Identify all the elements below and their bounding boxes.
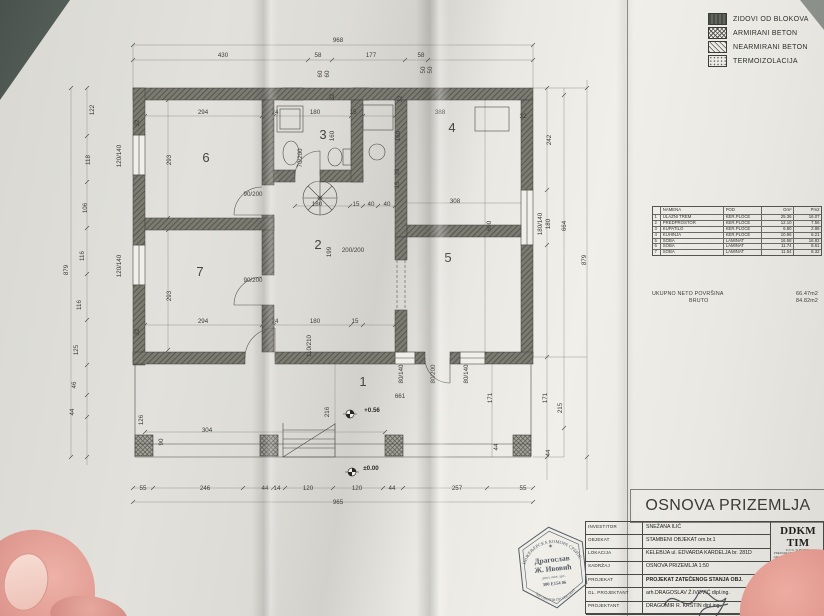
dim-label: 24	[272, 109, 279, 116]
dim-label: 50	[427, 66, 434, 73]
dim-label: 120	[352, 485, 363, 492]
dim-label: 293	[166, 290, 173, 301]
legend: ZIDOVI OD BLOKOVAARMIRANI BETONNEARMIRAN…	[708, 12, 809, 68]
table-cell: SOBA	[660, 239, 723, 244]
dim-label: 257	[452, 485, 463, 492]
svg-text:ОДГОВОРНИ ПРОЈЕКТАНТ: ОДГОВОРНИ ПРОЈЕКТАНТ	[534, 587, 577, 604]
svg-text:✶: ✶	[548, 543, 554, 550]
walls	[133, 88, 533, 365]
dim-label: 388	[435, 109, 446, 116]
dim-label: 180	[545, 218, 552, 229]
photo-of-floor-plan: 9684305817758606050508791221181061161161…	[0, 0, 824, 616]
diag-hatch-swatch	[708, 41, 727, 53]
table-cell: 8.32	[793, 250, 821, 255]
dim-label: 120/140	[116, 144, 123, 167]
table-cell: 4	[653, 233, 660, 238]
firm-box: DDKM TIM D.O.O. SUBOTICA PREDUZEĆE ZA PR…	[770, 522, 824, 575]
table-row: 1ULAZNI TREMKER.PLOČE25.3616.07	[653, 214, 821, 220]
signature	[656, 580, 756, 616]
stamp: ИНЖЕЊЕРСКА КОМОРА СРБИЈЕ ✶ Драгослав Ж. …	[509, 520, 598, 616]
dim-label: 120/140	[116, 254, 123, 277]
dim-label: 90/200	[244, 191, 263, 198]
table-cell: 8.61	[793, 244, 821, 249]
table-cell: KUPATILO	[660, 227, 723, 232]
dim-label: 14	[274, 485, 281, 492]
dim-label: 116	[76, 300, 83, 310]
title-block-label: OBJEKAT	[586, 535, 643, 547]
stamp-license: 300 E154 06	[542, 580, 567, 588]
dim-label: 177	[366, 52, 377, 59]
cross-hatch-swatch	[708, 27, 727, 39]
bruto-label: BRUTO	[652, 298, 708, 305]
drawing-title: OSNOVA PRIZEMLJA	[630, 489, 824, 523]
dim-label: 216	[324, 406, 331, 417]
dim-label: 965	[333, 499, 344, 506]
dim-label: 308	[450, 198, 461, 205]
table-cell: KER.PLOČE	[723, 221, 761, 226]
dim-label: 44	[262, 485, 269, 492]
thin-lines	[135, 105, 531, 457]
table-cell: 11.74	[761, 244, 793, 249]
dim-label: 40	[368, 201, 375, 208]
room-number: 7	[196, 264, 203, 279]
room-number: 4	[448, 120, 455, 135]
dim-label: 120	[303, 485, 314, 492]
floor-plan: 9684305817758606050508791221181061161161…	[55, 20, 600, 520]
legend-label: TERMOIZOLACIJA	[733, 58, 798, 65]
table-cell: PREDPROSTOR	[660, 221, 723, 226]
dots-hatch-swatch	[708, 55, 727, 67]
dim-label: 180	[312, 201, 323, 208]
dim-label: 44	[389, 485, 396, 492]
dim-label: 126	[138, 414, 145, 425]
table-cell: KER.PLOČE	[723, 233, 761, 238]
dim-label: 180/140	[537, 212, 544, 235]
room-table: NAMENAPODOm²Pm21ULAZNI TREMKER.PLOČE25.3…	[652, 206, 822, 256]
dim-label: 430	[218, 52, 229, 59]
dim-label: 294	[198, 109, 209, 116]
dim-label: 32	[397, 95, 404, 102]
dim-label: 661	[395, 393, 406, 400]
legend-item: ZIDOVI OD BLOKOVA	[708, 12, 809, 26]
title-block-row: OBJEKATSTAMBENI OBJEKAT om.br.1	[586, 535, 770, 548]
table-row: 2PREDPROSTORKER.PLOČE12.107.56	[653, 220, 821, 226]
dim-label: ±0.00	[363, 465, 379, 472]
dim-label: 171	[487, 392, 494, 403]
dim-label: 80/200	[430, 364, 437, 383]
dim-label: 32	[134, 119, 141, 126]
dim-label: 664	[561, 220, 568, 231]
table-cell: 16.82	[793, 239, 821, 244]
dim-label: 58	[315, 52, 322, 59]
table-cell: SOBA	[660, 244, 723, 249]
title-block-label: SADRŽAJ	[586, 562, 643, 574]
table-cell: 12.10	[761, 221, 793, 226]
title-block-value: KELEBIJA ul. EDVARDA KARDELJA br. 281D	[643, 549, 770, 561]
dim-label: 58	[418, 52, 425, 59]
title-block-row: INVESTITORSNEŽANA ILIĆ	[586, 522, 770, 535]
table-cell: 25.36	[761, 215, 793, 220]
legend-label: ZIDOVI OD BLOKOVA	[733, 16, 809, 23]
dim-label: 242	[546, 134, 553, 145]
table-row: 7SOBALAMINAT11.548.32	[653, 249, 821, 255]
table-row: 3KUPATILOKER.PLOČE6.802.88	[653, 226, 821, 232]
opening-dashed	[397, 260, 405, 310]
dim-label: 294	[198, 318, 209, 325]
table-header-cell: Om²	[761, 207, 793, 214]
dim-label: 118	[85, 155, 92, 165]
dim-label: 116	[79, 251, 86, 261]
table-cell: LAMINAT	[723, 250, 761, 255]
legend-item: ARMIRANI BETON	[708, 26, 809, 40]
stamp-arc-bottom: ОДГОВОРНИ ПРОЈЕКТАНТ	[534, 587, 577, 604]
table-cell: 7	[653, 250, 660, 255]
dimension-lines	[71, 45, 587, 502]
dim-label: 15	[350, 109, 357, 116]
dim-label: 171	[542, 392, 549, 403]
table-cell: KER.PLOČE	[723, 215, 761, 220]
table-cell: 2.88	[793, 227, 821, 232]
table-header-cell: NAMENA	[660, 207, 723, 214]
dim-label: 40	[384, 201, 391, 208]
dim-label: 32	[520, 113, 527, 120]
dim-label: 15	[353, 201, 360, 208]
dim-label: 180	[310, 318, 321, 325]
table-cell: 6.21	[793, 233, 821, 238]
dim-label: 15	[394, 181, 401, 188]
dim-label: 33	[394, 168, 401, 175]
dim-label: 199	[326, 246, 333, 257]
dim-label: 55	[140, 485, 147, 492]
dim-label: 879	[581, 254, 588, 265]
room-number: 2	[314, 237, 321, 252]
dim-label: 106	[82, 202, 89, 213]
table-row: 5SOBALAMINAT16.5816.82	[653, 238, 821, 244]
table-cell: 16.07	[793, 215, 821, 220]
dim-label: 60	[324, 70, 331, 77]
table-cell: 11.54	[761, 250, 793, 255]
dim-label: 125	[73, 344, 80, 355]
dim-label: 160	[395, 130, 402, 141]
dim-label: 968	[333, 37, 344, 44]
firm-name: DDKM TIM	[771, 525, 824, 549]
dim-label: 44	[69, 408, 76, 415]
table-cell: LAMINAT	[723, 244, 761, 249]
title-block-value: SNEŽANA ILIĆ	[643, 522, 770, 534]
dim-label: +0.56	[364, 407, 380, 414]
dim-label: 879	[63, 264, 70, 275]
sheet-number: 3	[770, 602, 824, 615]
table-row: 6SOBALAMINAT11.748.61	[653, 243, 821, 249]
dim-label: 200/200	[342, 247, 365, 254]
dim-label: 180	[310, 109, 321, 116]
table-cell: 2	[653, 221, 660, 226]
table-cell: 7.56	[793, 221, 821, 226]
title-block-value: OSNOVA PRIZEMLJA 1:50	[643, 562, 770, 574]
dim-label: 24	[272, 318, 279, 325]
table-cell: 6	[653, 244, 660, 249]
table-cell: 10.96	[761, 233, 793, 238]
porch-columns	[135, 435, 531, 456]
table-header-row: NAMENAPODOm²Pm2	[653, 207, 821, 214]
table-cell: KER.PLOČE	[723, 227, 761, 232]
license-number: 300 E154 06	[770, 588, 804, 601]
title-block-label: LOKACIJA	[586, 549, 643, 561]
title-block-label: INVESTITOR	[586, 522, 643, 534]
table-header-cell: POD	[723, 207, 761, 214]
dim-label: 600	[486, 220, 493, 231]
table-cell: LAMINAT	[723, 239, 761, 244]
firm-subline: GRAĐEVINARSTVO I INŽENJERING	[771, 556, 824, 559]
dim-label: 246	[200, 485, 211, 492]
legend-item: TERMOIZOLACIJA	[708, 54, 809, 68]
dim-label: 304	[202, 427, 213, 434]
legend-label: ARMIRANI BETON	[733, 30, 797, 37]
legend-label: NEARMIRANI BETON	[733, 44, 808, 51]
title-block: INVESTITORSNEŽANA ILIĆOBJEKATSTAMBENI OB…	[585, 521, 824, 614]
table-cell: ULAZNI TREM	[660, 215, 723, 220]
dim-label: 80/140	[463, 364, 470, 383]
dim-label: 32	[134, 328, 141, 335]
dim-label: 60	[317, 70, 324, 77]
dim-label: 215	[557, 402, 564, 413]
dim-label: 32	[329, 93, 336, 100]
legend-item: NEARMIRANI BETON	[708, 40, 809, 54]
dim-label: 15	[352, 318, 359, 325]
neto-label: UKUPNO NETO POVRŠINA	[652, 291, 724, 298]
drawing-date: III 2017	[804, 588, 824, 601]
table-header-cell	[653, 207, 660, 214]
dim-label: 160	[329, 130, 336, 141]
table-cell: KUHINJA	[660, 233, 723, 238]
title-block-row: SADRŽAJOSNOVA PRIZEMLJA 1:50	[586, 562, 770, 575]
room-number: 3	[319, 127, 326, 142]
bruto-value: 84.82m2	[796, 298, 818, 305]
dim-label: 122	[89, 104, 96, 115]
dim-label: 50	[420, 66, 427, 73]
table-cell: 16.58	[761, 239, 793, 244]
level-marks	[343, 410, 359, 476]
table-cell: 6.80	[761, 227, 793, 232]
table-cell: 1	[653, 215, 660, 220]
solid-hatch-swatch	[708, 13, 727, 25]
dim-label: 90	[158, 438, 165, 445]
dim-label: 90/200	[244, 277, 263, 284]
area-totals: UKUPNO NETO POVRŠINA66.47m2 BRUTO84.82m2	[652, 291, 818, 305]
dim-label: 44	[545, 449, 552, 456]
dim-label: 46	[71, 381, 78, 388]
dim-label: 44	[493, 443, 500, 450]
table-cell: 5	[653, 239, 660, 244]
room-number: 6	[202, 150, 209, 165]
room-number: 1	[359, 374, 366, 389]
title-block-row: LOKACIJAKELEBIJA ul. EDVARDA KARDELJA br…	[586, 549, 770, 562]
table-cell: SOBA	[660, 250, 723, 255]
neto-value: 66.47m2	[796, 291, 818, 298]
room-number: 5	[444, 250, 451, 265]
title-block-value: STAMBENI OBJEKAT om.br.1	[643, 535, 770, 547]
dim-label: 55	[520, 485, 527, 492]
table-cell: 3	[653, 227, 660, 232]
dim-label: 293	[166, 154, 173, 165]
dim-label: 80/140	[398, 364, 405, 383]
table-row: 4KUHINJAKER.PLOČE10.966.21	[653, 232, 821, 238]
dim-label: 70/200	[297, 148, 304, 167]
drawing-code: E-20/17	[770, 575, 824, 588]
dim-label: 110/210	[306, 334, 313, 356]
table-header-cell: Pm2	[793, 207, 821, 214]
